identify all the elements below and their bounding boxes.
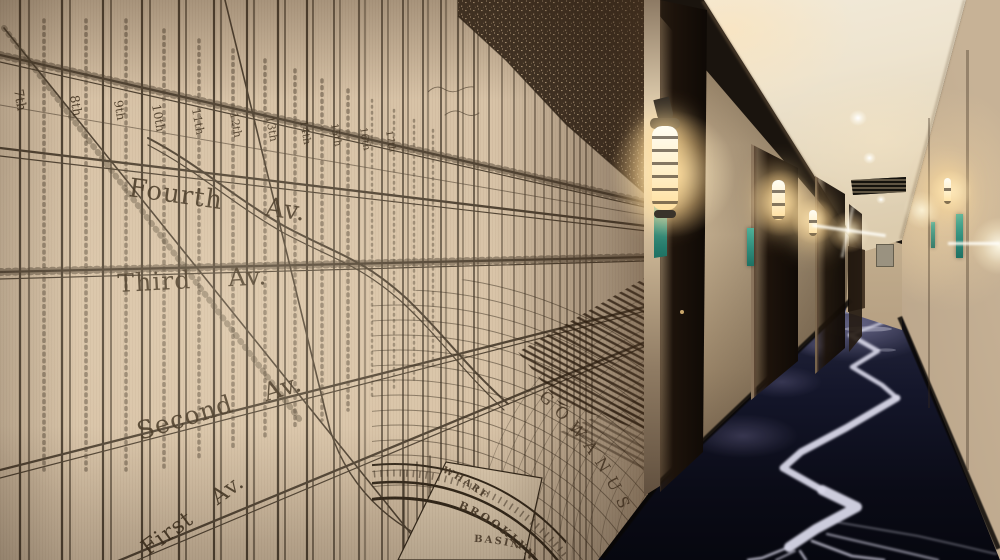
sconce-glass	[652, 126, 678, 210]
recessed-light	[876, 195, 886, 204]
recessed-light	[849, 110, 867, 126]
recessed-light	[863, 152, 876, 164]
electrical-panel	[876, 244, 894, 267]
vintage-map-graphic: Fourth Av. Third Av. Second Av. First Av…	[0, 0, 650, 560]
wall-sconce	[650, 98, 682, 222]
ceiling-vent	[851, 177, 906, 195]
wall-sconce	[944, 178, 951, 204]
light-flare	[948, 242, 1000, 245]
sconce-cap	[654, 210, 676, 218]
door-handle	[680, 310, 684, 314]
door-frame	[928, 118, 930, 408]
wall-sconce-glow	[922, 162, 980, 220]
hotel-corridor-photo: Fourth Av. Third Av. Second Av. First Av…	[0, 0, 1000, 560]
